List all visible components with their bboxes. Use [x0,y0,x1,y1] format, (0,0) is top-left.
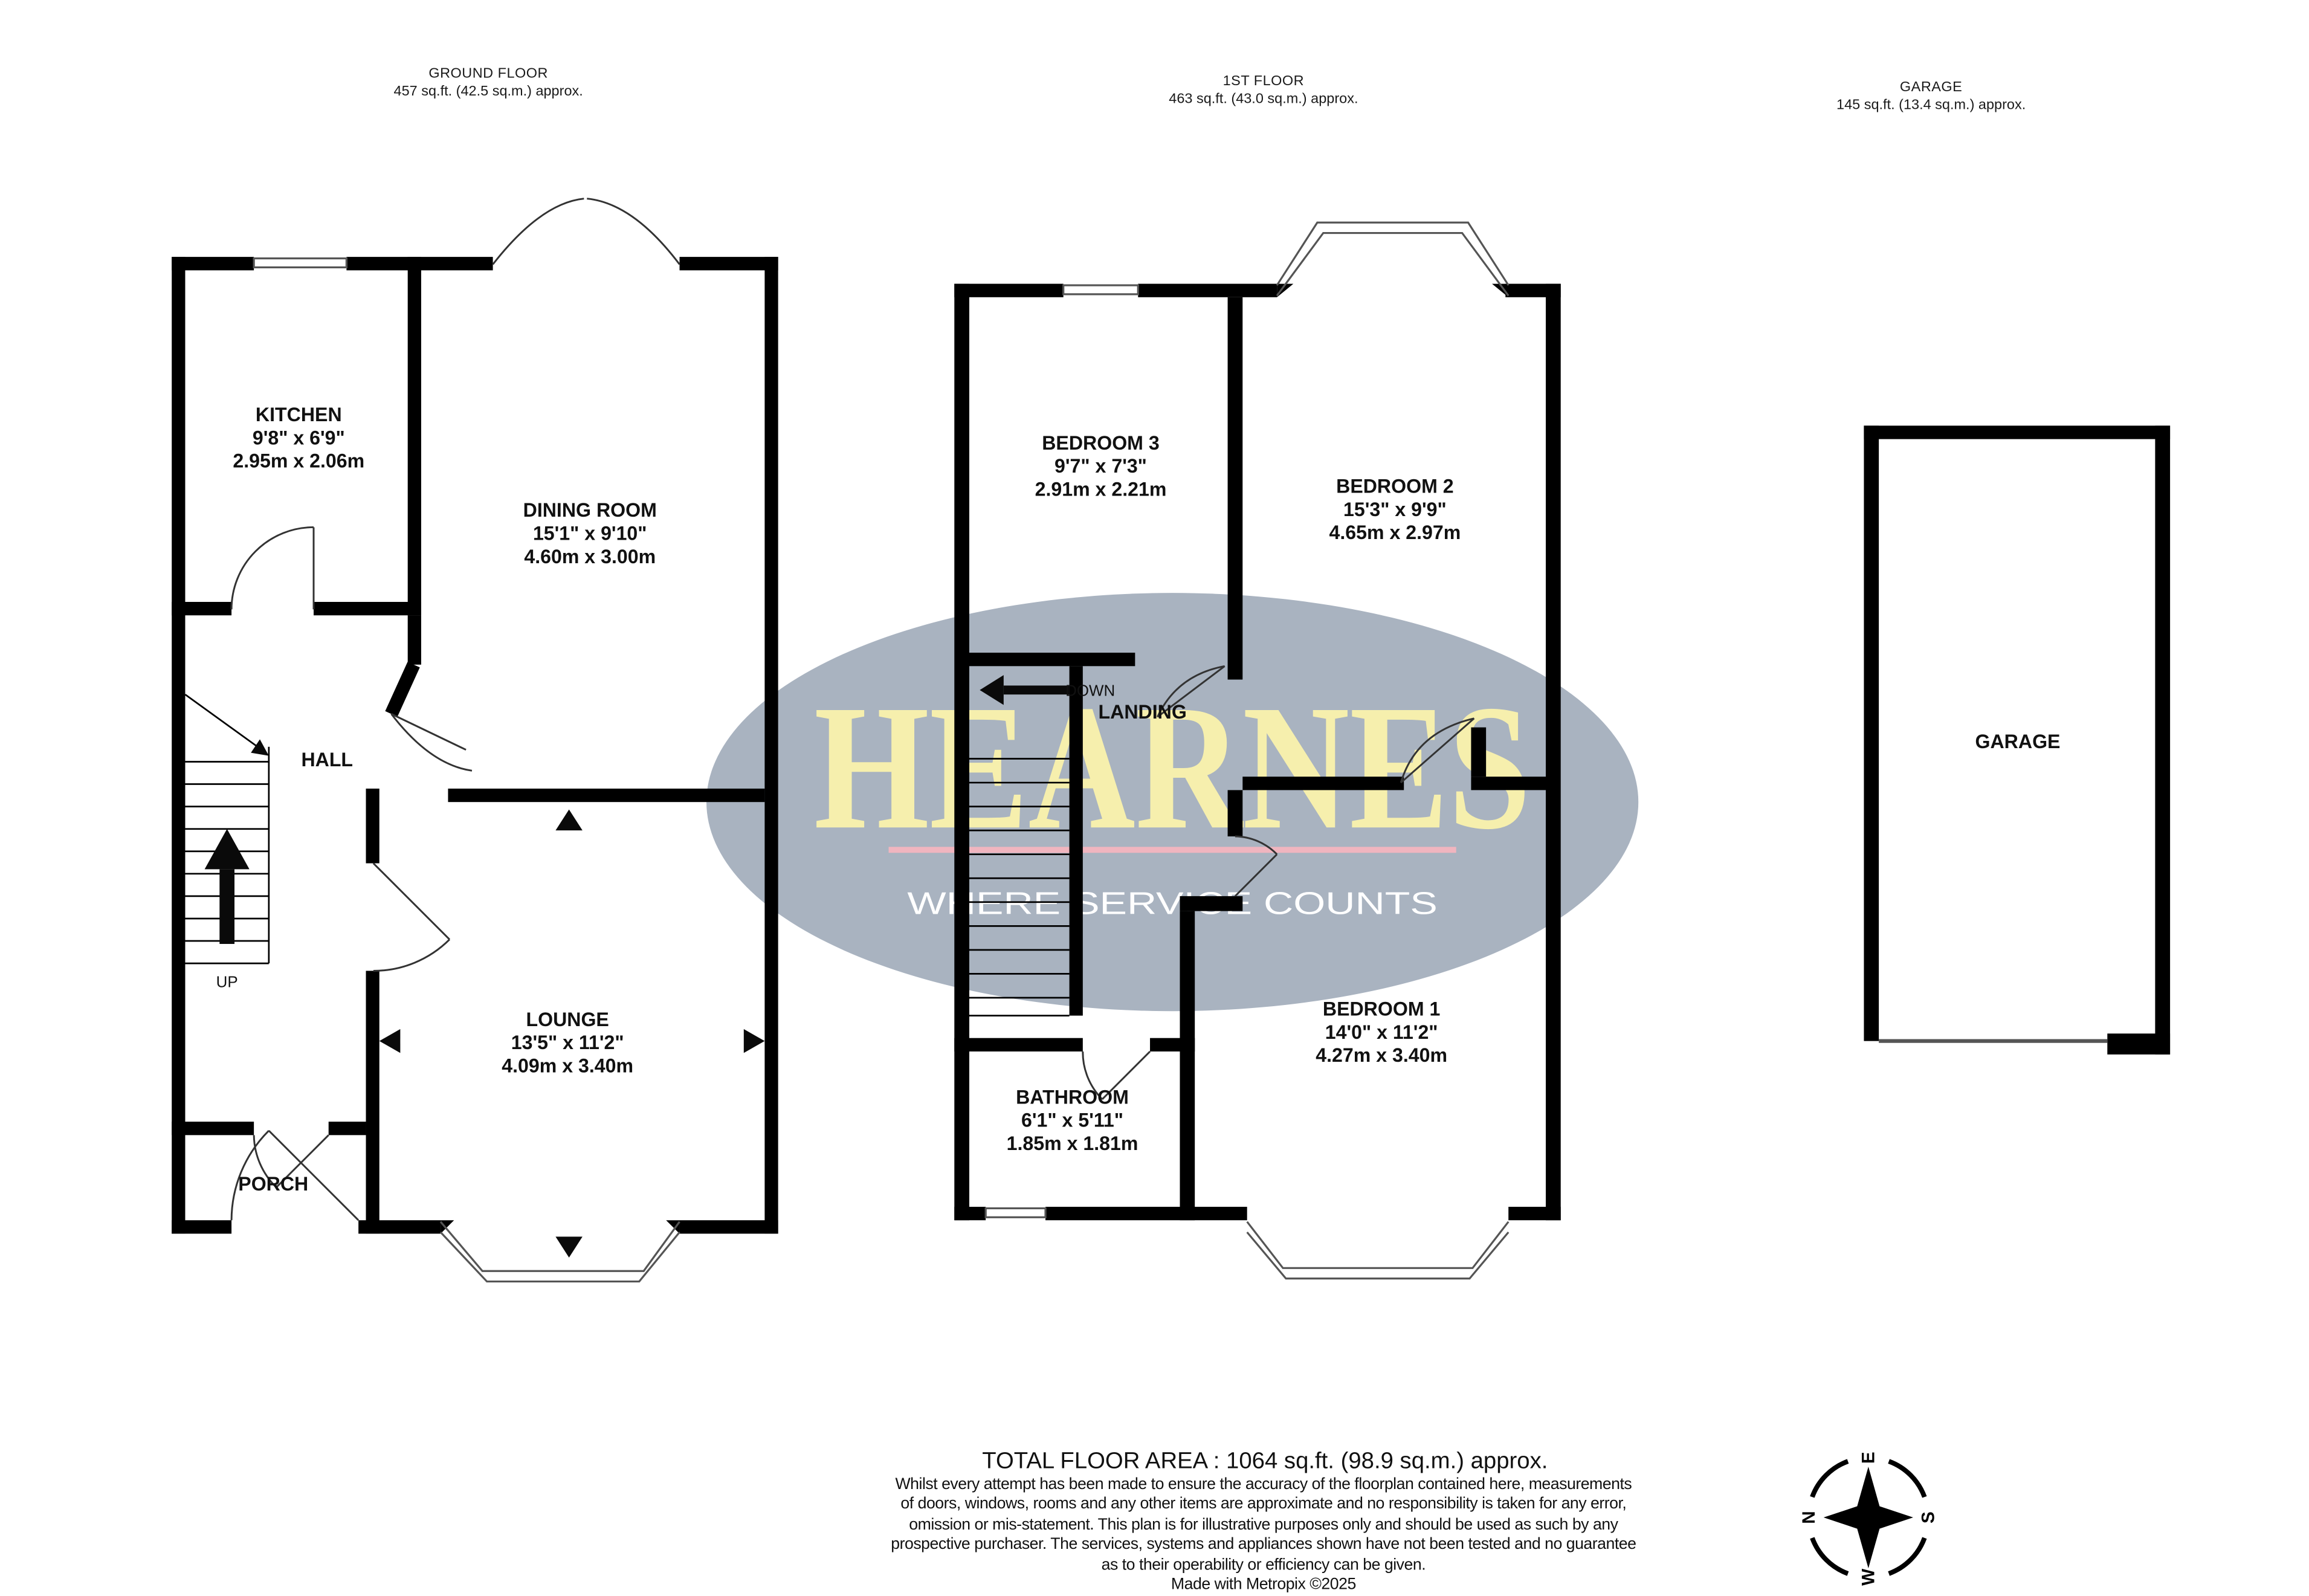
bedroom2-label: BEDROOM 2 [1336,476,1453,497]
kitchen-imperial: 9'8" x 6'9" [253,427,345,448]
up-arrow [205,829,250,944]
bedroom1-label: BEDROOM 1 [1323,998,1440,1020]
dining-french-doors [493,199,680,265]
floorplan-page: GROUND FLOOR 457 sq.ft. (42.5 sq.m.) app… [0,0,2309,1588]
down-arrow [980,675,1069,705]
bedroom1-metric: 4.27m x 3.40m [1316,1044,1447,1066]
ground-staircase [185,694,268,963]
disclaimer: Whilst every attempt has been made to en… [741,1476,1786,1596]
lounge-bay-window [441,1222,679,1282]
first-floor-title: 1ST FLOOR [965,73,1563,90]
marker-left-triangle [379,1029,401,1053]
first-floor-header: 1ST FLOOR 463 sq.ft. (43.0 sq.m.) approx… [965,73,1563,108]
compass-star-icon [1824,1467,1913,1568]
compass-north-label: N [1799,1511,1819,1523]
landing-label: LANDING [1099,701,1187,723]
bathroom-imperial: 6'1" x 5'11" [1021,1110,1123,1131]
garage-label: GARAGE [1975,731,2061,752]
bathroom-window [986,1208,1045,1217]
lounge-metric: 4.09m x 3.40m [502,1055,633,1077]
total-floor-area: TOTAL FLOOR AREA : 1064 sq.ft. (98.9 sq.… [817,1449,1713,1475]
ground-floor-header: GROUND FLOOR 457 sq.ft. (42.5 sq.m.) app… [190,66,787,100]
dining-room-imperial: 15'1" x 9'10" [533,522,647,544]
down-label: DOWN [1065,683,1115,700]
compass-south-label: S [1919,1511,1939,1523]
kitchen-label: KITCHEN [256,404,342,425]
ground-floor-area: 457 sq.ft. (42.5 sq.m.) approx. [190,83,787,100]
bedroom3-label: BEDROOM 3 [1042,432,1159,454]
bedroom3-window [1064,285,1138,294]
disclaimer-line: of doors, windows, rooms and any other i… [741,1496,1786,1516]
garage-header: GARAGE 145 sq.ft. (13.4 sq.m.) approx. [1632,79,2230,114]
hall-label: HALL [301,749,353,771]
marker-right-triangle [744,1029,765,1053]
bedroom1-imperial: 14'0" x 11'2" [1325,1021,1438,1043]
stair-direction-arrowhead [251,739,269,755]
bedroom2-imperial: 15'3" x 9'9" [1343,499,1447,520]
lounge-label: LOUNGE [526,1009,609,1030]
dining-room-metric: 4.60m x 3.00m [524,546,656,567]
first-walls [954,284,1560,1221]
first-floor-area: 463 sq.ft. (43.0 sq.m.) approx. [965,91,1563,108]
ground-floor-plan: KITCHEN 9'8" x 6'9" 2.95m x 2.06m DINING… [149,179,806,1285]
marker-down-triangle [555,1236,582,1258]
garage-area: 145 sq.ft. (13.4 sq.m.) approx. [1632,96,2230,113]
kitchen-window [254,259,346,268]
marker-up-triangle [555,810,582,831]
porch-label: PORCH [238,1173,308,1195]
compass-rose: E S W N [1797,1446,1940,1589]
ground-floor-title: GROUND FLOOR [190,66,787,83]
disclaimer-line: Whilst every attempt has been made to en… [741,1476,1786,1496]
first-floor-plan: BEDROOM 3 9'7" x 7'3" 2.91m x 2.21m BEDR… [941,209,1583,1299]
bedroom2-metric: 4.65m x 2.97m [1329,522,1461,543]
compass-west-label: W [1859,1569,1879,1586]
first-staircase [969,675,1070,1016]
compass-east-label: E [1859,1452,1879,1464]
ground-windows [254,199,679,1282]
garage-title: GARAGE [1632,79,2230,96]
bedroom1-bay-window [1247,1222,1509,1279]
kitchen-metric: 2.95m x 2.06m [233,450,364,472]
bathroom-label: BATHROOM [1016,1086,1129,1108]
lounge-imperial: 13'5" x 11'2" [511,1032,624,1053]
disclaimer-line: omission or mis-statement. This plan is … [741,1516,1786,1536]
bedroom3-imperial: 9'7" x 7'3" [1054,455,1147,477]
garage-plan: GARAGE [1837,403,2195,1090]
bedroom2-bay-window [1277,222,1508,296]
disclaimer-line: as to their operability or efficiency ca… [741,1556,1786,1575]
up-label: UP [216,974,238,991]
disclaimer-line: prospective purchaser. The services, sys… [741,1536,1786,1556]
bedroom3-metric: 2.91m x 2.21m [1035,479,1167,500]
metropix-credit: Made with Metropix ©2025 [741,1576,1786,1596]
bathroom-metric: 1.85m x 1.81m [1007,1132,1138,1154]
dining-room-label: DINING ROOM [523,499,657,521]
